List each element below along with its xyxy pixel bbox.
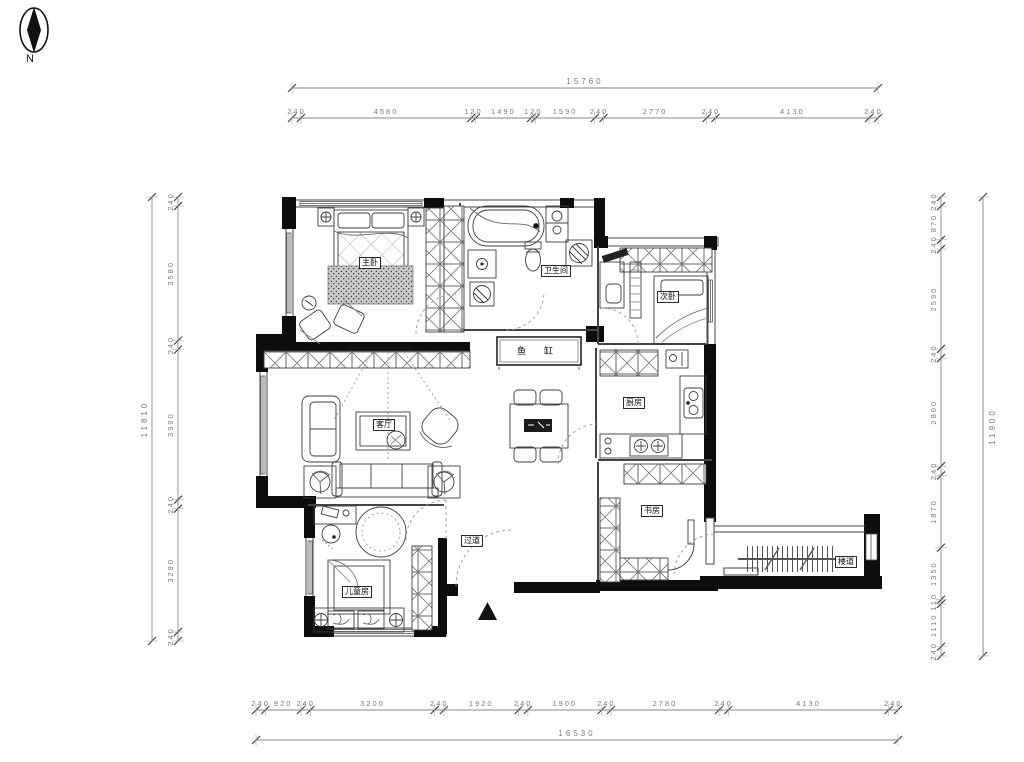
chair <box>540 447 562 462</box>
bedside-rug <box>328 266 413 304</box>
wardrobe <box>620 248 712 272</box>
room-study <box>600 464 706 582</box>
chair <box>540 390 562 405</box>
north-label: N <box>26 53 34 65</box>
stove-icon <box>600 434 682 458</box>
dim-label: 110 <box>929 593 938 611</box>
dim-label: 120 <box>524 107 543 116</box>
label-study: 书房 <box>641 505 663 517</box>
room-living-room <box>264 344 470 498</box>
dim-label: 240 <box>166 627 175 646</box>
label-corridor: 楼道 <box>835 556 857 568</box>
dim-label: 240 <box>864 107 883 116</box>
dim-label: 240 <box>929 344 938 363</box>
fridge <box>666 350 688 368</box>
wardrobe <box>412 546 432 630</box>
dim-label: 2770 <box>643 107 668 116</box>
dim-label: 240 <box>884 699 903 708</box>
loveseat <box>302 396 340 462</box>
dim-label: 240 <box>251 699 270 708</box>
chair <box>514 447 536 462</box>
floor-plan-drawing: N <box>0 0 1024 762</box>
dim-label: 4130 <box>780 107 805 116</box>
label-hallway: 过道 <box>461 535 483 547</box>
dimension-annotations: 1576024045801201490120159024027702404130… <box>140 77 997 746</box>
dim-label: 1900 <box>552 699 577 708</box>
dim-label: 1350 <box>929 561 938 586</box>
label-kitchen: 厨房 <box>623 397 645 409</box>
dim-label: 240 <box>514 699 533 708</box>
dim-label: 2780 <box>653 699 678 708</box>
wardrobe <box>426 208 444 332</box>
washbasin <box>468 250 496 278</box>
label-bathroom: 卫生间 <box>541 265 571 277</box>
bathtub-icon <box>468 206 544 246</box>
room-kitchen <box>600 350 706 458</box>
dim-label: 240 <box>702 107 721 116</box>
label-master-bedroom: 主卧 <box>359 257 381 269</box>
label-kids-room: 儿童房 <box>342 586 372 598</box>
dim-label: 240 <box>166 495 175 514</box>
dim-label: 240 <box>597 699 616 708</box>
dim-label: 240 <box>714 699 733 708</box>
label-living-room: 客厅 <box>373 419 395 431</box>
dim-label: 240 <box>590 107 609 116</box>
vanity-sink <box>546 206 568 242</box>
dim-label: 4580 <box>374 107 399 116</box>
round-rug <box>356 507 406 557</box>
cabinets <box>600 350 658 376</box>
dim-label: 240 <box>929 235 938 254</box>
dim-label: 240 <box>166 336 175 355</box>
door-frame <box>706 518 714 564</box>
dim-label: 870 <box>929 214 938 233</box>
closet <box>444 206 464 332</box>
dim-label: 2800 <box>929 400 938 425</box>
dim-label: 2590 <box>929 287 938 312</box>
dim-label: 920 <box>274 699 293 708</box>
entry-arrow-icon <box>478 602 497 620</box>
dim-label: 3280 <box>166 558 175 583</box>
north-arrow-icon: N <box>20 7 48 65</box>
dim-label: 3990 <box>166 412 175 437</box>
dim-label: 16530 <box>558 729 595 738</box>
dim-label: 240 <box>430 699 449 708</box>
toilet-icon <box>525 242 541 271</box>
dim-label: 240 <box>929 642 938 661</box>
sofa <box>332 462 442 497</box>
room-kids <box>314 506 432 632</box>
dim-label: 15760 <box>566 77 603 86</box>
dim-label: 1920 <box>469 699 494 708</box>
corridor <box>674 518 842 575</box>
armchair <box>387 403 463 449</box>
planter <box>304 466 336 498</box>
dim-label: 120 <box>464 107 483 116</box>
floor-plan-page: N <box>0 0 1024 762</box>
dim-label: 3580 <box>166 261 175 286</box>
dim-label: 240 <box>166 192 175 211</box>
room-second-bedroom <box>600 248 712 344</box>
coffee-table <box>356 412 410 450</box>
tv-icon <box>346 344 414 350</box>
chair <box>514 390 536 405</box>
cabinet <box>620 558 668 580</box>
room-bathroom <box>468 206 592 306</box>
dim-label: 240 <box>287 107 306 116</box>
dining-set <box>510 390 568 462</box>
dim-label: 1110 <box>929 614 938 638</box>
washing-machine-icon <box>566 240 592 266</box>
washing-machine-icon <box>470 282 494 306</box>
door-leaf <box>688 520 694 544</box>
dim-label: 240 <box>929 192 938 211</box>
dim-label: 240 <box>296 699 315 708</box>
bookshelf <box>624 464 706 484</box>
dim-label: 4130 <box>796 699 821 708</box>
chair <box>322 525 340 543</box>
label-fish-tank: 鱼缸 <box>507 346 573 356</box>
tv-cabinet <box>264 351 470 368</box>
desk <box>314 506 356 550</box>
dim-label: 3200 <box>360 699 385 708</box>
dim-label: 240 <box>929 462 938 481</box>
dim-label: 11810 <box>140 401 149 438</box>
room-master-bedroom <box>298 206 464 344</box>
dim-label: 11900 <box>988 408 997 445</box>
bookcase <box>600 498 620 582</box>
dim-label: 1590 <box>553 107 578 116</box>
door-swing <box>668 544 694 570</box>
counter-sink <box>680 376 706 434</box>
dim-label: 1870 <box>929 499 938 524</box>
dim-label: 1490 <box>491 107 516 116</box>
label-second-bedroom: 次卧 <box>657 291 679 303</box>
single-bed <box>654 276 708 344</box>
